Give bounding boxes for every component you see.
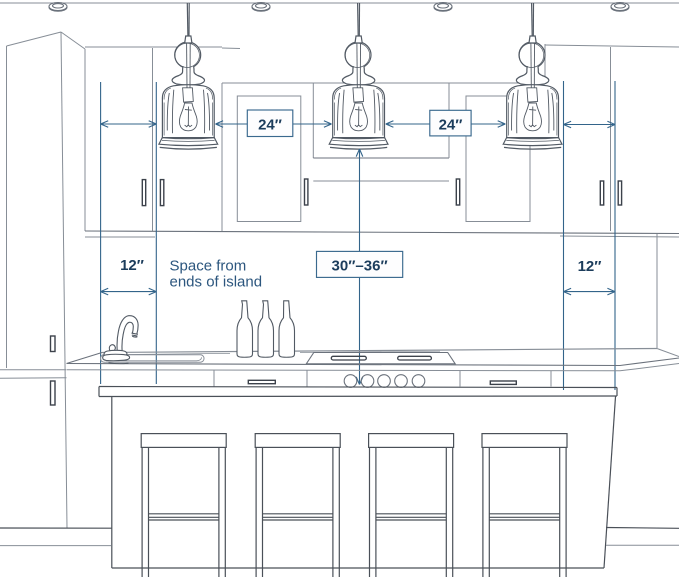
svg-text:ends of island: ends of island: [170, 274, 263, 291]
svg-text:12″: 12″: [578, 258, 602, 275]
svg-text:12″: 12″: [120, 257, 144, 274]
svg-text:Space from: Space from: [170, 258, 247, 275]
svg-text:24″: 24″: [258, 117, 282, 134]
svg-text:24″: 24″: [439, 117, 463, 134]
svg-text:30″–36″: 30″–36″: [332, 258, 388, 275]
